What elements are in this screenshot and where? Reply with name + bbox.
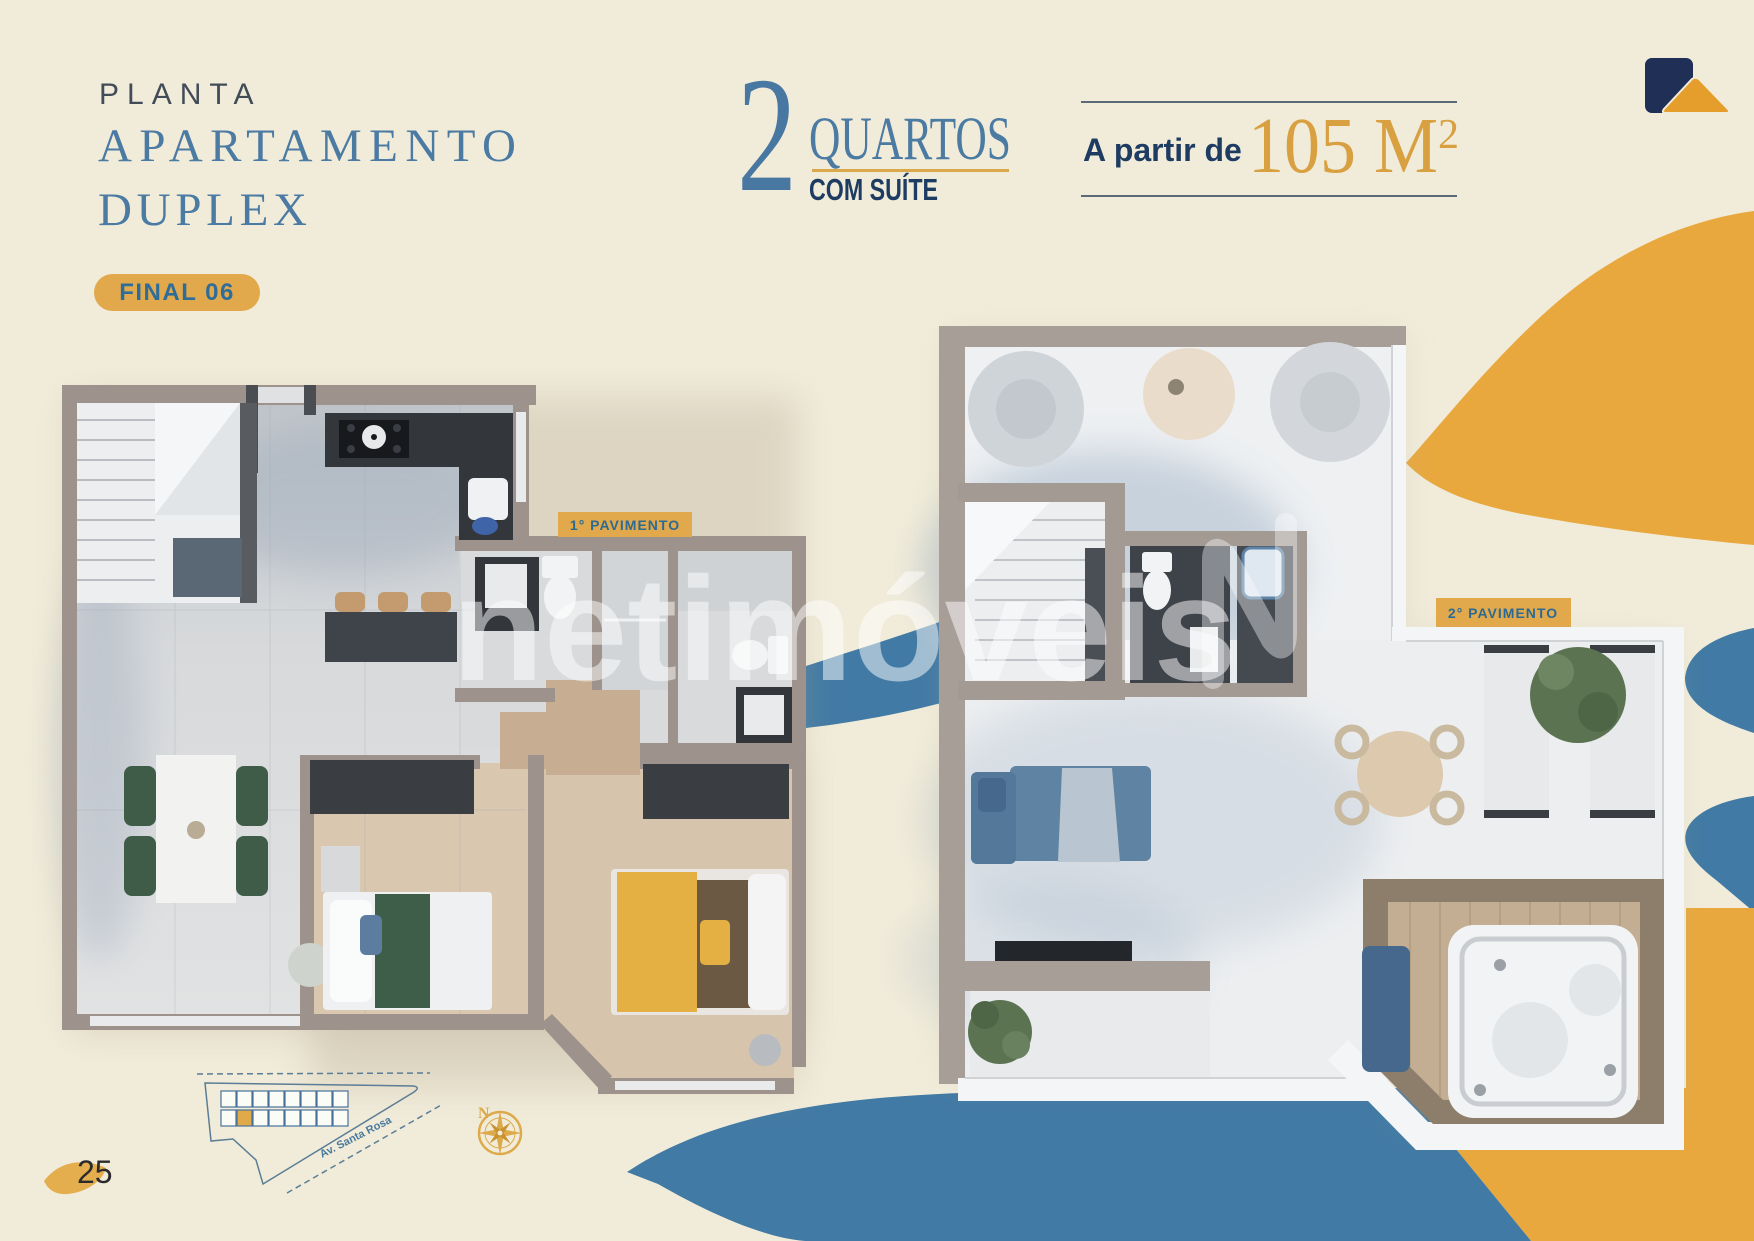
svg-text:N: N bbox=[478, 1105, 490, 1122]
svg-text:FINAL 06: FINAL 06 bbox=[119, 279, 235, 306]
svg-text:2: 2 bbox=[737, 43, 797, 226]
svg-text:PLANTA: PLANTA bbox=[99, 78, 261, 111]
svg-text:A partir de: A partir de bbox=[1083, 132, 1242, 168]
svg-text:2° PAVIMENTO: 2° PAVIMENTO bbox=[1448, 605, 1558, 621]
svg-text:2: 2 bbox=[1438, 112, 1459, 158]
svg-text:25: 25 bbox=[77, 1154, 113, 1190]
svg-text:QUARTOS: QUARTOS bbox=[809, 106, 1011, 173]
svg-text:105 M: 105 M bbox=[1248, 103, 1438, 190]
svg-text:netimóveis: netimóveis bbox=[452, 547, 1237, 712]
svg-text:APARTAMENTO: APARTAMENTO bbox=[98, 120, 516, 172]
svg-text:1° PAVIMENTO: 1° PAVIMENTO bbox=[570, 517, 680, 533]
svg-text:COM SUÍTE: COM SUÍTE bbox=[809, 172, 938, 207]
